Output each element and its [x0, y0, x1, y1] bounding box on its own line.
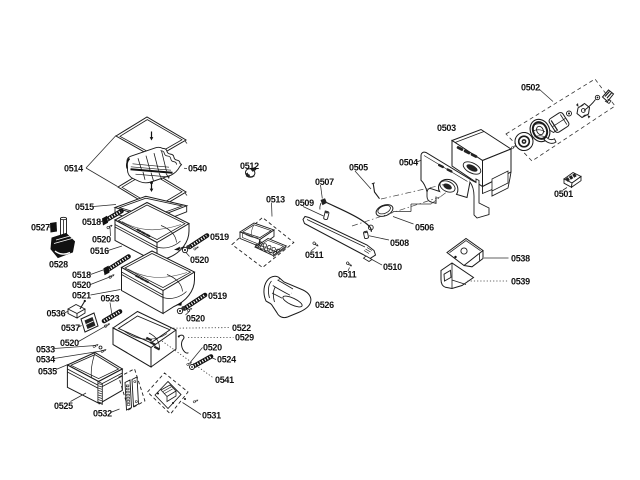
- svg-text:0514: 0514: [64, 163, 83, 173]
- svg-text:0501: 0501: [554, 189, 573, 199]
- svg-text:0524: 0524: [217, 354, 236, 364]
- svg-text:0505: 0505: [349, 162, 368, 172]
- svg-text:0531: 0531: [202, 410, 221, 420]
- svg-text:0520: 0520: [186, 313, 205, 323]
- svg-text:0515: 0515: [75, 202, 94, 212]
- svg-text:0521: 0521: [72, 290, 91, 300]
- svg-text:0508: 0508: [390, 238, 409, 248]
- svg-text:0536: 0536: [47, 308, 66, 318]
- svg-text:0539: 0539: [511, 276, 530, 286]
- svg-text:0538: 0538: [511, 253, 530, 263]
- svg-text:0520: 0520: [60, 338, 79, 348]
- svg-text:0532: 0532: [93, 408, 112, 418]
- svg-text:0518: 0518: [72, 270, 91, 280]
- svg-text:0502: 0502: [521, 82, 540, 92]
- svg-text:0509: 0509: [295, 198, 314, 208]
- svg-text:0504: 0504: [399, 157, 418, 167]
- svg-text:0527: 0527: [31, 222, 50, 232]
- svg-text:0519: 0519: [210, 232, 229, 242]
- svg-text:0522: 0522: [232, 323, 251, 333]
- svg-text:0507: 0507: [315, 177, 334, 187]
- svg-text:0525: 0525: [54, 401, 73, 411]
- svg-text:0537: 0537: [61, 323, 80, 333]
- svg-text:0520: 0520: [92, 234, 111, 244]
- svg-text:0516: 0516: [90, 246, 109, 256]
- svg-text:0534: 0534: [36, 354, 55, 364]
- svg-text:0520: 0520: [203, 342, 222, 352]
- svg-text:0518: 0518: [82, 217, 101, 227]
- svg-text:0519: 0519: [208, 291, 227, 301]
- svg-text:0523: 0523: [101, 293, 120, 303]
- svg-text:0511: 0511: [338, 269, 357, 279]
- svg-text:0511: 0511: [305, 250, 324, 260]
- svg-text:0510: 0510: [383, 262, 402, 272]
- svg-text:0520: 0520: [72, 280, 91, 290]
- svg-text:0526: 0526: [315, 300, 334, 310]
- svg-text:0541: 0541: [215, 375, 234, 385]
- svg-text:0513: 0513: [266, 194, 285, 204]
- svg-text:0528: 0528: [49, 259, 68, 269]
- svg-text:0520: 0520: [190, 255, 209, 265]
- svg-text:0533: 0533: [36, 344, 55, 354]
- svg-text:0540: 0540: [188, 163, 207, 173]
- svg-text:0529: 0529: [235, 332, 254, 342]
- svg-text:0506: 0506: [415, 222, 434, 232]
- svg-text:0512: 0512: [240, 161, 259, 171]
- svg-text:0535: 0535: [38, 366, 57, 376]
- svg-text:0503: 0503: [437, 123, 456, 133]
